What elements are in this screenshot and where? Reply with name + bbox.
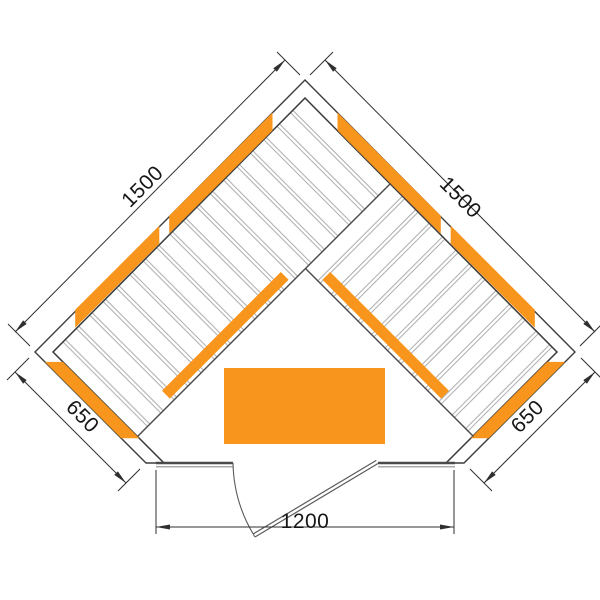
bench-slat-line	[411, 290, 497, 376]
door-arc	[233, 463, 255, 537]
bench-slat-line	[199, 204, 285, 289]
bench-slat-line	[344, 223, 430, 309]
bench-slat-line	[441, 319, 526, 405]
bench-slat-line	[145, 258, 231, 344]
bench-slat-line	[239, 164, 325, 250]
bench-slat-line	[425, 303, 511, 389]
bench-slat-line	[266, 137, 352, 223]
bench-slat-line	[156, 247, 242, 333]
bench-slat-line	[89, 314, 175, 400]
bench-slat-line	[358, 236, 444, 322]
bench-slat-line	[438, 317, 524, 403]
dimension-label-front-wall: 1200	[281, 510, 330, 533]
dimension-label-right-wall: 1500	[435, 172, 486, 223]
dim-line-right-650	[484, 372, 595, 483]
bench-slat-line	[210, 193, 295, 279]
bench-slat-line	[331, 209, 417, 295]
bench-slat-line	[347, 225, 433, 311]
bench-slat-line	[183, 220, 269, 306]
bench-slat-line	[158, 245, 244, 331]
bench-slat-line	[427, 306, 513, 392]
bench-slat-line	[129, 274, 215, 360]
bench-slat-line	[264, 140, 350, 226]
bench-slat-line	[212, 191, 298, 276]
bench-slat-line	[387, 265, 473, 351]
bench-slat-line	[360, 239, 446, 325]
bench-slat-line	[185, 218, 270, 304]
bench-slat-line	[226, 177, 312, 263]
bench-slat-line	[132, 272, 218, 358]
bench-slat-line	[400, 279, 486, 365]
sauna-floor-plan-page: 1500 1500 650 650 1200	[0, 0, 600, 600]
bench-slat-line	[102, 301, 188, 387]
bench-slat-line	[116, 287, 202, 373]
bench-slat-line	[118, 285, 204, 371]
bench-slat-line	[398, 276, 484, 362]
bench-slat-line	[91, 312, 177, 398]
bench-slat-line	[250, 153, 336, 239]
bench-slat-line	[333, 212, 419, 298]
bench-slat-line	[414, 292, 500, 378]
bench-slat-line	[223, 180, 309, 265]
wall-heater-panel-upper-left-2	[75, 226, 159, 328]
wall-heater-panel-upper-right-2	[451, 226, 535, 328]
front-wall	[156, 463, 455, 467]
sauna-floor-plan-diagram: 1500 1500 650 650 1200	[0, 0, 600, 600]
dimension-label-left-wall: 1500	[117, 161, 168, 212]
dimension-labels: 1500 1500 650 650 1200	[61, 161, 548, 533]
bench-slat-line	[169, 234, 255, 320]
wall-heater-panel-upper-left-1	[169, 113, 272, 234]
bench-slat-line	[105, 298, 191, 384]
heater-unit	[224, 368, 385, 444]
bench-slat-line	[385, 263, 471, 349]
bench-slat-line	[373, 252, 459, 338]
bench-slat-line	[253, 151, 339, 237]
bench-slat-line	[196, 207, 281, 293]
bench-slat-line	[143, 260, 229, 346]
wall-heater-panel-upper-right-1	[338, 113, 441, 234]
bench-slat-line	[371, 250, 457, 336]
bench-slat-line	[237, 166, 323, 252]
bench-slat-line	[172, 231, 258, 317]
